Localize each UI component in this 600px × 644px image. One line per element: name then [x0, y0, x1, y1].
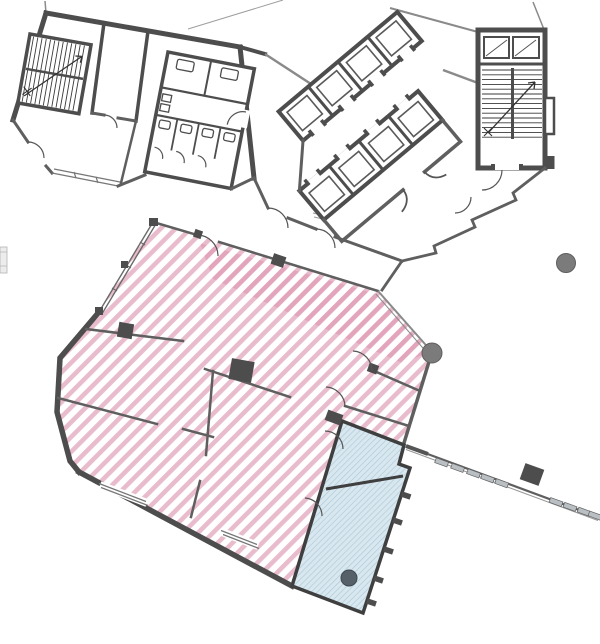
column: [117, 322, 134, 339]
stairwell-northwest: [18, 34, 91, 114]
column-marker-pink-corner: [422, 343, 442, 363]
column: [228, 358, 254, 383]
southeast-boundary-wall: [382, 168, 545, 290]
wing-northwest: [13, 13, 258, 189]
column-east-wall: [520, 463, 545, 486]
floor-plan-page: [0, 0, 600, 644]
window-wall-east: [406, 446, 600, 521]
entrance-door-flare: [392, 162, 447, 212]
stairwell-east: [455, 30, 555, 213]
window-sill-tabs: [435, 458, 600, 520]
wc-fixture: [223, 132, 235, 142]
door-swing: [28, 142, 44, 158]
toilet-block: [145, 52, 259, 189]
wc-fixture: [180, 124, 192, 134]
cut-off-wall-fragment: [0, 247, 7, 273]
sink: [160, 104, 170, 113]
column-marker-blue-room: [341, 570, 357, 586]
tower-side-duct: [545, 98, 554, 134]
door-swing: [104, 115, 117, 128]
wc-fixture: [158, 120, 170, 130]
column-marker-east: [557, 254, 576, 273]
door-swing-lobby-1: [482, 170, 502, 190]
door-swing-corridor-1: [268, 208, 288, 228]
sink: [162, 94, 172, 103]
floor-plan: [0, 0, 600, 644]
window-band-southwest: [52, 169, 120, 186]
door-swing-lobby-2: [455, 197, 471, 213]
wc-fixture: [202, 128, 214, 138]
